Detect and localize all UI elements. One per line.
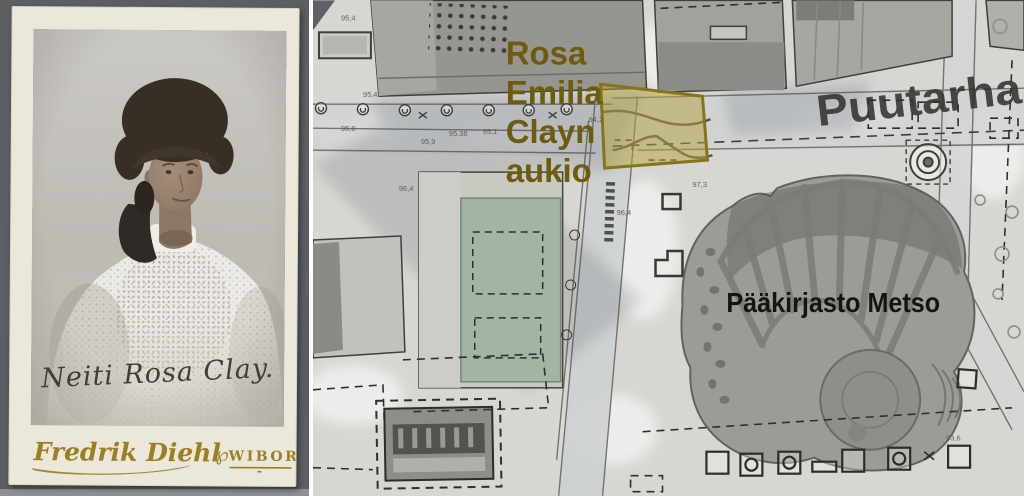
portrait-illustration: Neiti Rosa Clay. (31, 29, 287, 427)
building-west (313, 236, 405, 358)
photographer-name: Fredrik Diehl (32, 437, 221, 467)
elevation-label: 96,4 (399, 184, 414, 193)
rooftop-structure (710, 26, 746, 39)
portrait-photo-panel: Neiti Rosa Clay. Fredrik Diehl ℘ WIBORG (0, 0, 309, 496)
roof-vent-grid (428, 3, 510, 58)
elevation-label: 97,3 (692, 180, 707, 189)
studio-ornament-glyph: ℘ (215, 443, 228, 465)
metso-library-building (681, 175, 974, 470)
elevation-label: 95,1 (483, 127, 498, 136)
elevation-label: 95,4 (363, 90, 378, 99)
city-underline (229, 468, 291, 472)
elevation-label: 95,4 (341, 13, 356, 22)
square-name-line: Clayn (506, 113, 596, 150)
carte-de-visite-card: Neiti Rosa Clay. Fredrik Diehl ℘ WIBORG (8, 6, 299, 487)
floor-strip (0, 489, 309, 496)
library-name-label: Pääkirjasto Metso (726, 287, 940, 318)
composite-image: Neiti Rosa Clay. Fredrik Diehl ℘ WIBORG (0, 0, 1024, 496)
elevation-label: 96,4 (617, 208, 632, 217)
square-name-line: aukio (506, 152, 592, 189)
studio-imprint: Fredrik Diehl ℘ WIBORG (9, 426, 295, 486)
roof-circle-hall (820, 350, 920, 450)
highlighted-square-area (601, 84, 708, 168)
photograph-print: Neiti Rosa Clay. (31, 29, 287, 427)
elevation-label: 95,36 (449, 129, 468, 138)
studio-city: WIBORG (227, 449, 295, 466)
building-sw-windows (376, 399, 501, 489)
city-plan-map: 95,4 95,4 95,8 95,9 95,36 95,1 94,2 96,4… (313, 0, 1024, 496)
building-far-ne (986, 0, 1024, 50)
elevation-label: 95,9 (421, 137, 436, 146)
elevation-label: 95,8 (341, 124, 356, 133)
square-name-line: Emilia (506, 74, 604, 111)
elevation-label: 93,6 (946, 434, 961, 443)
square-name-line: Rosa (506, 34, 587, 71)
